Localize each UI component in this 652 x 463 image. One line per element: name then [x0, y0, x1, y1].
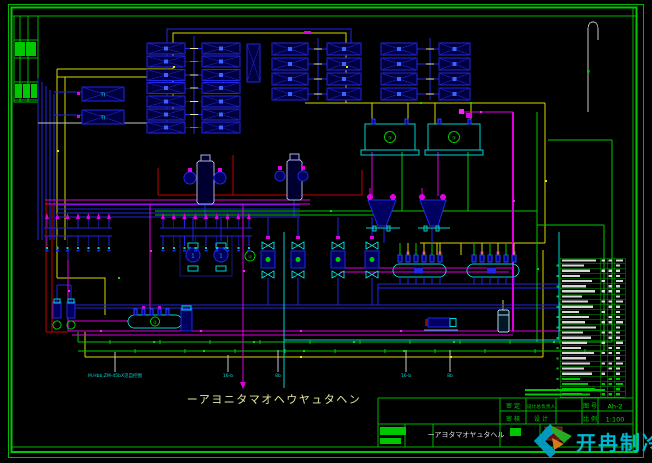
- flow-arrow: [240, 382, 246, 389]
- chief-designer-label: 设计总负责人: [527, 403, 556, 410]
- watermark: 开冉制冷: [534, 424, 652, 458]
- drawing-no-value: Ah-2: [607, 403, 622, 411]
- cooling-towers: ③ ③: [361, 119, 483, 155]
- strip-stamp-cell: [15, 42, 25, 56]
- cooling-tower-tag: ③: [388, 136, 392, 142]
- heat-exchangers: [184, 154, 308, 204]
- scale-label: 比 例: [583, 415, 597, 423]
- water-headers-right: [393, 264, 519, 277]
- watermark-text: 开冉制冷: [576, 431, 652, 455]
- pump-tag: 1: [219, 254, 222, 260]
- ahu-label: TI: [100, 116, 106, 122]
- pump-group-tag: ①: [248, 255, 252, 261]
- strip-stamp-cell: [23, 84, 30, 98]
- cad-drawing-canvas: TI TI ③ ③ 1 1 ①: [0, 0, 652, 463]
- pump-pair-bottom-left: [53, 299, 75, 329]
- review-label: 审 核: [506, 415, 520, 423]
- drawing-name: ーアヨタマオヤュタヘル: [428, 430, 505, 439]
- bottom-note-label: M.Hbb,ZM-45bX见自控图: [88, 372, 143, 379]
- design-label: 设 计: [534, 415, 548, 423]
- condenser-fan-units: [366, 194, 450, 231]
- pipe-size-label: 8b: [447, 373, 453, 379]
- strip-stamp-cell: [31, 84, 37, 98]
- scale-value: 1:100: [606, 416, 625, 424]
- pipe-size-label: 16-b: [401, 373, 411, 379]
- drawing-no-label: 图 号: [583, 403, 597, 410]
- ahu-label: TI: [100, 93, 106, 99]
- approve-label: 审 定: [506, 402, 520, 410]
- strip-stamp-cell: [26, 42, 36, 56]
- collector-tag: ②: [153, 320, 157, 326]
- company-name-block: [380, 438, 401, 444]
- cooling-tower-tag: ③: [452, 136, 456, 142]
- ahu-units: TI TI: [82, 87, 124, 124]
- strip-stamp-cell: [15, 84, 22, 98]
- company-name-block: [380, 427, 406, 435]
- pump-tag: 1: [191, 254, 194, 260]
- pipe-size-label: 16-b: [223, 373, 233, 379]
- annotation-labels: ーアヨニタマオヘウヤュタヘン M.Hbb,ZM-45bX见自控图 16-b 8b…: [88, 372, 453, 406]
- header-valves: [398, 243, 516, 284]
- misc-devices: [424, 310, 509, 332]
- main-title: ーアヨニタマオヘウヤュタヘン: [187, 393, 362, 406]
- collector-stubs: [134, 306, 169, 315]
- stamp-cell: [510, 428, 521, 436]
- pipe-size-label: 8b: [275, 373, 281, 379]
- equipment-table: [525, 258, 625, 397]
- left-title-strip: [14, 16, 38, 102]
